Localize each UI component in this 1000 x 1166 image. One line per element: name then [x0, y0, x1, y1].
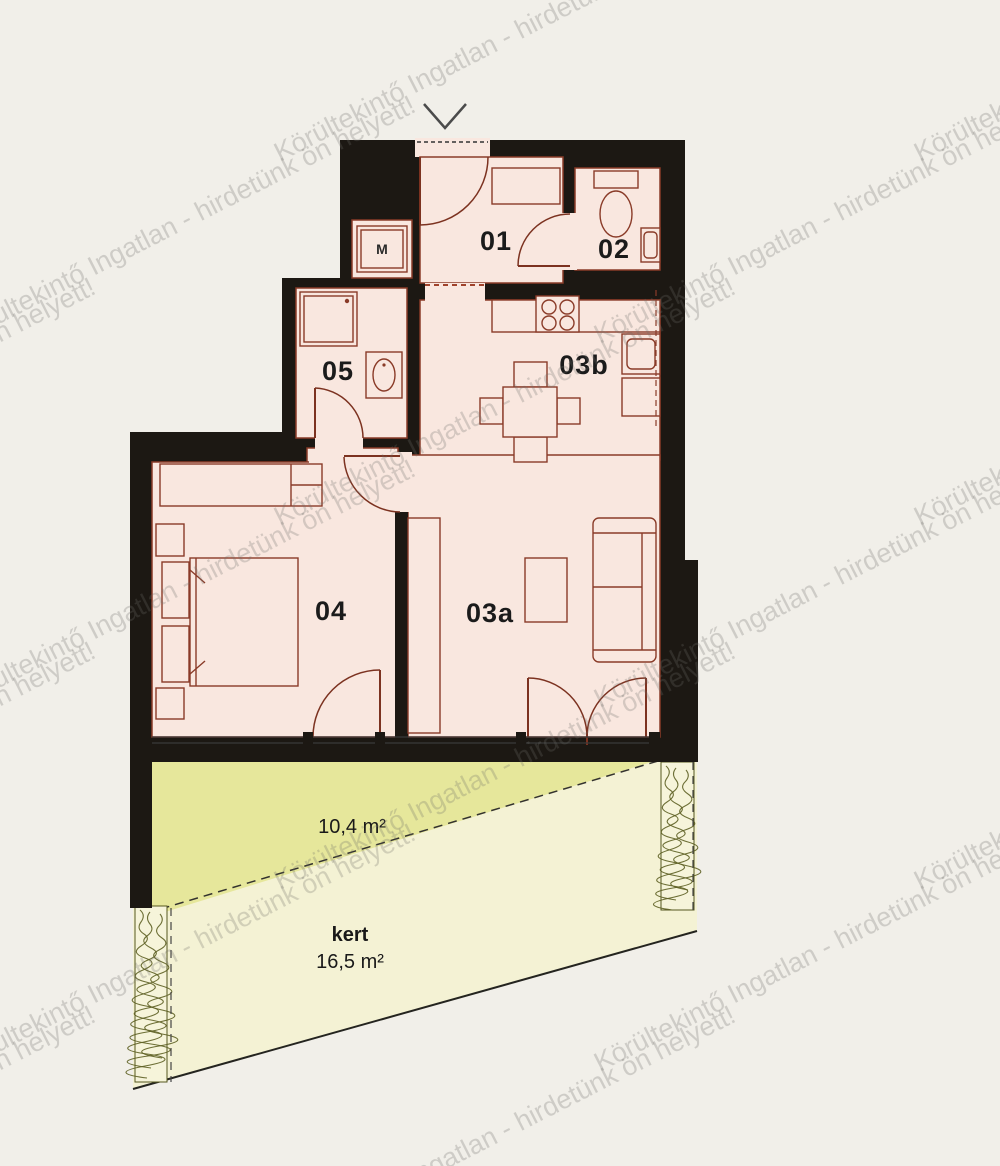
floor-plan: 01 02 03a 03b 04 05 M 10,4 m² kert 16,5 … — [0, 0, 1000, 1166]
watermark-text: Körültekintő Ingatlan - hirdetünk ön hel… — [909, 1000, 1000, 1166]
hall-cabinet — [492, 168, 560, 204]
nightstand — [156, 524, 184, 556]
room-02-label: 02 — [598, 234, 630, 264]
entrance-arrow — [424, 104, 466, 128]
watermark-text: Körültekintő Ingatlan - hirdetünk ön hel… — [0, 636, 100, 896]
washing-machine-label: M — [376, 241, 388, 257]
room-01-label: 01 — [480, 226, 512, 256]
coffee-table — [525, 558, 567, 622]
entry-recess — [415, 138, 490, 157]
room-03a-label: 03a — [466, 598, 514, 628]
bath-sink-icon — [366, 352, 402, 398]
shower-icon — [300, 292, 357, 346]
watermark-text: Körültekintő Ingatlan - hirdetünk ön hel… — [0, 272, 100, 532]
watermark-text: Körültekintő Ingatlan - hirdetünk ön hel… — [0, 0, 100, 167]
scanned-floorplan-page: 01 02 03a 03b 04 05 M 10,4 m² kert 16,5 … — [0, 0, 1000, 1166]
garden-area-label: 16,5 m² — [316, 951, 384, 973]
kitchen-cabinet — [622, 378, 660, 416]
wc-sink-icon — [641, 228, 660, 262]
room-05-label: 05 — [322, 356, 354, 386]
room-04-label: 04 — [315, 596, 347, 626]
nightstand — [156, 688, 184, 719]
tall-cabinet — [408, 518, 440, 733]
garden-name-label: kert — [332, 924, 369, 946]
sofa-icon — [593, 518, 656, 662]
wall-04-03a-divider — [395, 512, 408, 749]
stove-icon — [536, 296, 579, 332]
hedge-right — [653, 762, 700, 910]
